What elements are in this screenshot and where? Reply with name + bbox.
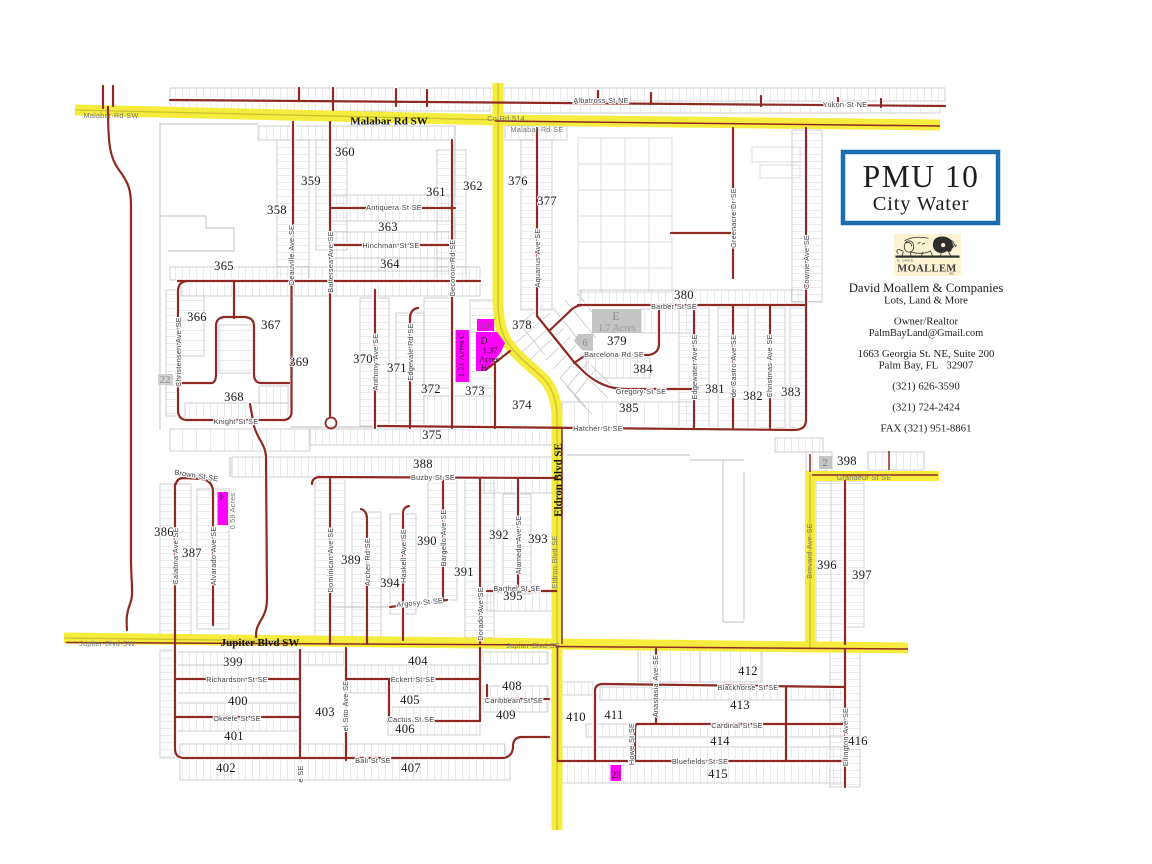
svg-text:Antiquera·St·SE: Antiquera·St·SE [366, 203, 422, 212]
svg-text:INC: INC [949, 272, 955, 276]
svg-text:Jupiter·Blvd·SE: Jupiter·Blvd·SE [506, 641, 560, 650]
svg-text:Edgewater·Ave·SE: Edgewater·Ave·SE [690, 334, 699, 399]
svg-text:Eldron·Blvd·SE: Eldron·Blvd·SE [550, 536, 559, 589]
svg-text:Aquarius·Ave·SE: Aquarius·Ave·SE [533, 229, 542, 288]
svg-text:Christensen·Ave·SE: Christensen·Ave·SE [174, 317, 183, 387]
svg-text:Eldron Blvd SE: Eldron Blvd SE [553, 443, 565, 517]
svg-text:409: 409 [496, 708, 516, 722]
svg-text:383: 383 [781, 385, 801, 399]
svg-text:Palm Bay, FL 32907: Palm Bay, FL 32907 [879, 360, 974, 372]
svg-text:384: 384 [633, 362, 653, 376]
svg-text:379: 379 [607, 334, 627, 348]
svg-text:401: 401 [224, 729, 244, 743]
svg-text:413: 413 [730, 698, 750, 712]
svg-text:Bluefields·St·SE: Bluefields·St·SE [672, 757, 728, 766]
svg-text:388: 388 [413, 457, 433, 471]
svg-text:Jupiter·Blvd·SW: Jupiter·Blvd·SW [79, 639, 135, 648]
svg-text:405: 405 [400, 693, 420, 707]
svg-text:376: 376 [508, 174, 528, 188]
svg-text:Richardson·St·SE: Richardson·St·SE [206, 675, 268, 684]
svg-text:Haskell·Ave·SE: Haskell·Ave·SE [399, 529, 408, 583]
svg-text:e·SE: e·SE [296, 765, 305, 782]
svg-text:6: 6 [583, 338, 588, 349]
svg-text:F: F [220, 492, 225, 502]
svg-text:414: 414 [710, 734, 730, 748]
svg-text:Knight·St·SE: Knight·St·SE [214, 417, 259, 426]
svg-text:Malabar Rd SW: Malabar Rd SW [350, 116, 427, 128]
svg-text:369: 369 [289, 355, 309, 369]
svg-text:Greenacre·Dr·SE: Greenacre·Dr·SE [729, 188, 738, 248]
svg-text:Eckert·St·SE: Eckert·St·SE [391, 675, 436, 684]
svg-text:381: 381 [705, 382, 725, 396]
svg-text:398: 398 [837, 454, 857, 468]
svg-text:Dorado·Ave·SE: Dorado·Ave·SE [476, 587, 485, 641]
svg-text:Deauville·Ave·SE: Deauville·Ave·SE [287, 225, 296, 285]
svg-text:Gregory·St·SE: Gregory·St·SE [616, 387, 666, 396]
svg-text:Owner/Realtor: Owner/Realtor [894, 316, 959, 328]
svg-text:390: 390 [417, 534, 437, 548]
svg-text:el·Sito·Ave·SE: el·Sito·Ave·SE [341, 681, 350, 732]
svg-text:412: 412 [738, 664, 758, 678]
svg-text:Buzby·St·SE: Buzby·St·SE [411, 473, 455, 482]
svg-text:400: 400 [228, 694, 248, 708]
svg-text:368: 368 [224, 390, 244, 404]
svg-text:411: 411 [604, 708, 623, 722]
svg-text:22: 22 [160, 374, 171, 386]
svg-text:387: 387 [182, 546, 202, 560]
svg-text:Albatross·St·NE: Albatross·St·NE [573, 96, 628, 105]
svg-text:Hatcher·St·SE: Hatcher·St·SE [573, 424, 623, 433]
svg-text:Yukon·St·NE: Yukon·St·NE [823, 100, 867, 109]
svg-text:397: 397 [852, 568, 872, 582]
svg-text:Bargello·Ave·SE: Bargello·Ave·SE [439, 510, 448, 567]
svg-text:Co·Rd·514: Co·Rd·514 [487, 114, 525, 123]
svg-text:PalmBayLand@Gmail.com: PalmBayLand@Gmail.com [869, 328, 983, 339]
svg-text:372: 372 [421, 382, 441, 396]
svg-text:410: 410 [566, 710, 586, 724]
svg-text:Malabar·Rd·SE: Malabar·Rd·SE [511, 125, 564, 134]
svg-text:MOALLEM: MOALLEM [897, 264, 956, 275]
svg-text:Hinchman·St·SE: Hinchman·St·SE [362, 241, 419, 250]
svg-text:Okeefe·St·SE: Okeefe·St·SE [213, 714, 260, 723]
svg-text:City Water: City Water [873, 193, 970, 215]
svg-text:373: 373 [465, 384, 485, 398]
svg-text:Barber·St·SE: Barber·St·SE [651, 302, 697, 311]
svg-text:David Moallem & Companies: David Moallem & Companies [849, 281, 1004, 295]
svg-text:Anastasia·Ave·SE: Anastasia·Ave·SE [651, 655, 660, 717]
svg-text:Decorore·Rd·SE: Decorore·Rd·SE [448, 240, 457, 297]
svg-text:415: 415 [708, 767, 728, 781]
svg-text:399: 399 [223, 655, 243, 669]
svg-text:416: 416 [848, 734, 868, 748]
svg-text:358: 358 [267, 203, 287, 217]
svg-text:Archer·Rd·SE: Archer·Rd·SE [363, 538, 372, 586]
svg-text:Cownie·Ave·SE: Cownie·Ave·SE [802, 235, 811, 289]
svg-text:371: 371 [387, 361, 407, 375]
svg-text:377: 377 [537, 194, 557, 208]
svg-text:364: 364 [380, 257, 400, 271]
svg-text:10: 10 [481, 321, 491, 331]
svg-text:E: E [612, 309, 619, 323]
svg-text:Alvarado·Ave·SE: Alvarado·Ave·SE [209, 527, 218, 586]
svg-text:366: 366 [187, 310, 207, 324]
svg-text:PMU 10: PMU 10 [863, 159, 980, 194]
svg-text:402: 402 [216, 761, 236, 775]
svg-text:Barcelona·Rd·SE: Barcelona·Rd·SE [584, 350, 644, 359]
svg-text:1.21 Acres C: 1.21 Acres C [456, 333, 466, 377]
svg-text:392: 392 [489, 528, 509, 542]
svg-text:382: 382 [743, 389, 763, 403]
svg-text:(321) 626-3590: (321) 626-3590 [892, 381, 959, 393]
svg-text:378: 378 [512, 318, 532, 332]
svg-text:Alameda·Ave·SE: Alameda·Ave·SE [514, 516, 523, 575]
svg-text:Howe·St·SE: Howe·St·SE [627, 723, 636, 765]
svg-text:407: 407 [401, 761, 421, 775]
svg-text:406: 406 [395, 722, 415, 736]
svg-text:385: 385 [619, 401, 639, 415]
svg-text:(321) 724-2424: (321) 724-2424 [892, 402, 960, 414]
svg-text:395: 395 [503, 589, 523, 603]
svg-text:Grandeur·St·SE: Grandeur·St·SE [836, 473, 891, 482]
svg-text:Brevard·Ave·SE: Brevard·Ave·SE [805, 523, 814, 578]
svg-text:M. DAVID: M. DAVID [897, 259, 914, 263]
svg-text:365: 365 [214, 259, 234, 273]
svg-text:389: 389 [341, 553, 361, 567]
svg-text:408: 408 [502, 679, 522, 693]
svg-text:396: 396 [817, 558, 837, 572]
svg-text:1663 Georgia St. NE, Suite 200: 1663 Georgia St. NE, Suite 200 [858, 348, 995, 360]
svg-text:403: 403 [315, 705, 335, 719]
svg-text:367: 367 [261, 318, 281, 332]
svg-text:Cardinal·St·SE: Cardinal·St·SE [711, 721, 762, 730]
svg-text:Malabar·Rd·SW: Malabar·Rd·SW [84, 111, 139, 120]
svg-text:Jupiter Blvd SW: Jupiter Blvd SW [221, 637, 300, 649]
svg-text:370: 370 [353, 352, 373, 366]
svg-text:393: 393 [528, 532, 548, 546]
svg-text:375: 375 [422, 428, 442, 442]
svg-text:394: 394 [380, 576, 400, 590]
svg-text:Lots, Land & More: Lots, Land & More [884, 295, 968, 307]
svg-text:Blackhorse·St·SE: Blackhorse·St·SE [718, 683, 779, 692]
svg-text:Edgevale·Rd·SE: Edgevale·Rd·SE [406, 323, 415, 380]
svg-text:0.59 Acres: 0.59 Acres [228, 493, 237, 530]
svg-text:Battersea·Ave·SE: Battersea·Ave·SE [326, 231, 335, 292]
svg-text:374: 374 [512, 398, 532, 412]
svg-text:380: 380 [674, 288, 694, 302]
svg-text:404: 404 [408, 654, 428, 668]
svg-text:359: 359 [301, 174, 321, 188]
svg-text:23: 23 [612, 770, 622, 780]
svg-text:FAX (321) 951-8861: FAX (321) 951-8861 [881, 423, 972, 435]
svg-text:Bali·St·SE: Bali·St·SE [355, 756, 391, 765]
svg-text:362: 362 [463, 179, 483, 193]
svg-text:391: 391 [454, 565, 474, 579]
svg-text:H: H [481, 363, 488, 373]
svg-text:360: 360 [335, 145, 355, 159]
svg-text:Christmas·Ave·SE: Christmas·Ave·SE [765, 334, 774, 397]
svg-text:363: 363 [378, 220, 398, 234]
svg-text:1.7 Acres: 1.7 Acres [598, 323, 636, 334]
svg-text:386: 386 [154, 525, 174, 539]
svg-text:361: 361 [426, 185, 446, 199]
svg-text:2: 2 [823, 458, 828, 469]
svg-text:Dominican·Ave·SE: Dominican·Ave·SE [326, 528, 335, 593]
svg-text:Caribbean·St·SE: Caribbean·St·SE [485, 696, 543, 705]
svg-text:de·Castro·Ave·SE: de·Castro·Ave·SE [729, 335, 738, 397]
